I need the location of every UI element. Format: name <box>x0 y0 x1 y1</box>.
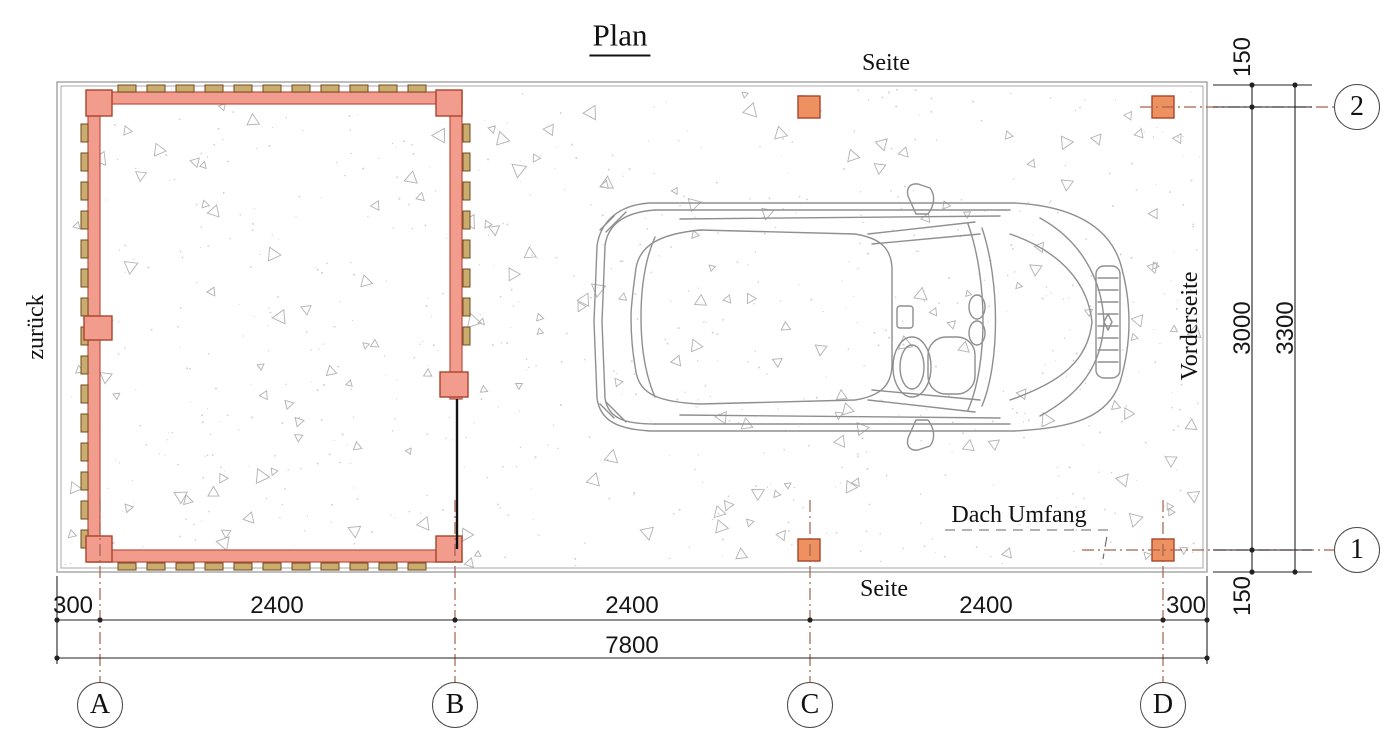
label-back-side: zurück <box>24 294 48 359</box>
label-side-bottom: Seite <box>860 577 908 601</box>
dim-right-total: 3300 <box>1274 301 1298 354</box>
grid-bubble-2: 2 <box>1334 84 1380 130</box>
dim-bottom-total: 7800 <box>605 634 658 658</box>
label-roof-outline: Dach Umfang <box>951 503 1086 527</box>
grid-bubble-d: D <box>1140 682 1186 728</box>
dim-right-150-bottom: 150 <box>1231 576 1255 616</box>
dim-bottom-300-right: 300 <box>1166 594 1206 618</box>
dim-right-3000: 3000 <box>1231 301 1255 354</box>
grid-bubble-a: A <box>77 682 123 728</box>
grid-bubble-1: 1 <box>1334 527 1380 573</box>
dim-bottom-2400-ab: 2400 <box>250 594 303 618</box>
plan-title: Plan <box>589 20 650 57</box>
floor-plan-canvas: Plan Seite Seite Vorderseite zurück Dach… <box>0 0 1395 750</box>
grid-bubble-b: B <box>432 682 478 728</box>
grid-bubble-c: C <box>787 682 833 728</box>
dim-bottom-2400-cd: 2400 <box>959 594 1012 618</box>
dim-right-150-top: 150 <box>1231 37 1255 77</box>
dim-bottom-300-left: 300 <box>53 594 93 618</box>
label-front-side: Vorderseite <box>1178 272 1202 381</box>
dim-bottom-2400-bc: 2400 <box>605 594 658 618</box>
slab-outline <box>57 82 1207 572</box>
label-side-top: Seite <box>862 51 910 75</box>
